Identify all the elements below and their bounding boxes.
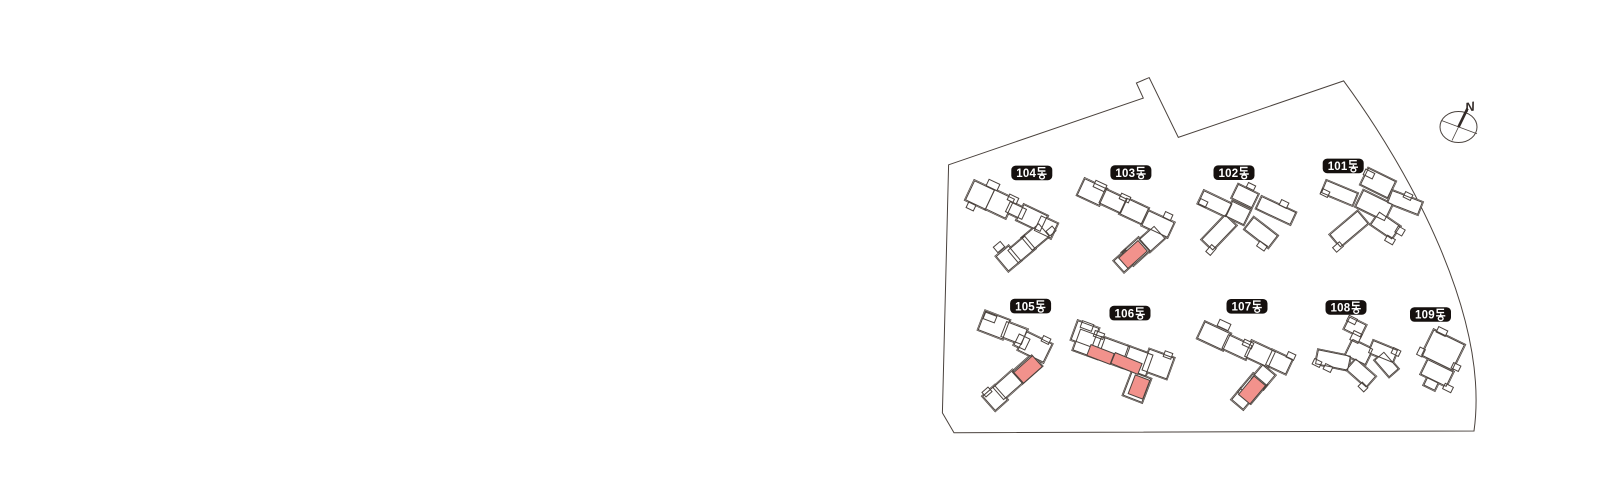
svg-text:107: 107 [1232, 302, 1252, 314]
svg-text:109: 109 [1415, 310, 1435, 322]
svg-text:101: 101 [1328, 161, 1348, 173]
svg-text:106: 106 [1115, 308, 1135, 320]
svg-text:108: 108 [1331, 303, 1351, 315]
svg-text:103: 103 [1115, 168, 1135, 180]
svg-text:104: 104 [1016, 168, 1036, 180]
svg-text:102: 102 [1219, 168, 1239, 180]
svg-text:105: 105 [1015, 301, 1035, 313]
